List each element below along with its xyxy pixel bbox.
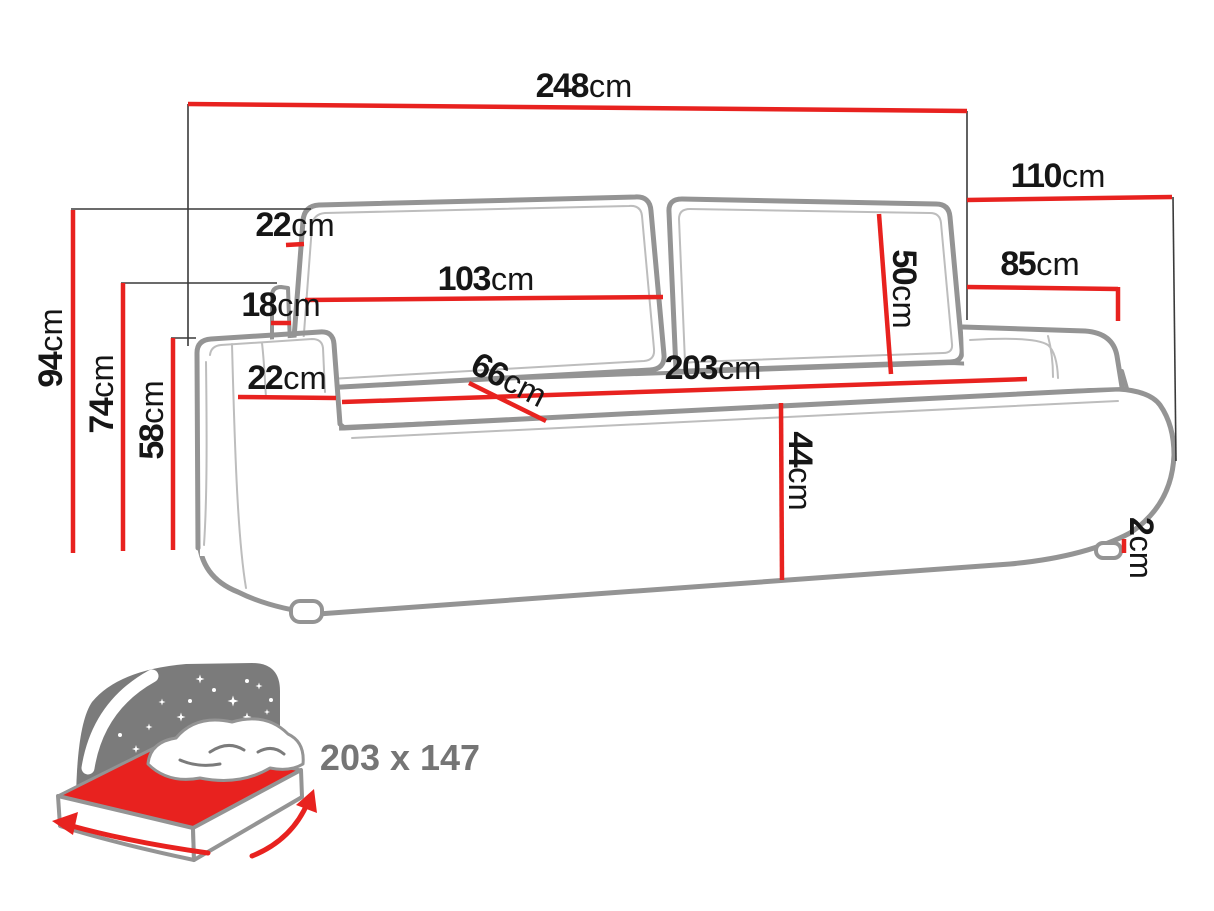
- dim-line-armrest-width: [238, 397, 336, 398]
- dim-line-overall-depth: [967, 197, 1172, 200]
- ext-overall-depth-right: [1173, 197, 1176, 461]
- dim-label-overall-depth: 110cm: [1011, 159, 1106, 193]
- dim-label-backrest-height: 74cm: [85, 354, 119, 433]
- diagram-canvas: [0, 0, 1214, 911]
- dim-label-overall-height: 94cm: [34, 308, 68, 387]
- dimension-diagram: 248cm 110cm 85cm 50cm 103cm 22cm 18cm 22…: [0, 0, 1214, 911]
- dim-label-leg-height: 2cm: [1124, 517, 1158, 579]
- dim-label-armrest-width: 22cm: [247, 361, 326, 395]
- dim-line-overall-width: [188, 104, 967, 111]
- dim-label-armrest-height: 58cm: [135, 380, 169, 459]
- dim-line-cushion-thickness: [286, 244, 304, 245]
- dim-label-overall-width: 248cm: [536, 69, 633, 103]
- dim-label-cushion-thickness: 22cm: [255, 208, 334, 242]
- foot-left: [291, 601, 322, 622]
- foot-right: [1096, 543, 1121, 558]
- dim-label-cushion-width: 103cm: [438, 262, 535, 296]
- dim-label-seat-width: 203cm: [665, 351, 762, 385]
- dim-label-seat-height: 44cm: [783, 431, 817, 510]
- dim-label-back-frame-thickness: 18cm: [241, 288, 320, 322]
- sleeping-area-icon: [52, 663, 317, 860]
- dim-label-armrest-depth: 85cm: [1000, 247, 1079, 281]
- sleeping-area-size-label: 203 x 147: [320, 737, 480, 779]
- dim-label-cushion-height: 50cm: [887, 249, 921, 328]
- dim-line-armrest-depth: [967, 287, 1118, 289]
